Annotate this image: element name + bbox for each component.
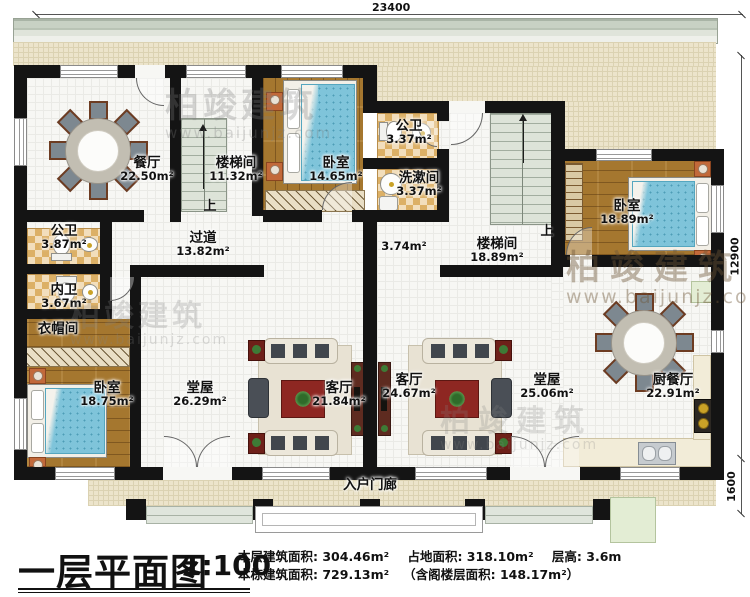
coffee-table bbox=[435, 380, 479, 418]
floor-mid-block bbox=[551, 267, 563, 467]
title-block: 一层平面图 1:100 本层建筑面积: 304.46m² 占地面积: 318.1… bbox=[0, 540, 750, 597]
room-label-bedroom-left: 卧室18.75m² bbox=[80, 381, 133, 407]
room-label-bath-left: 公卫3.87m² bbox=[41, 224, 86, 250]
wall bbox=[263, 210, 322, 222]
wall bbox=[170, 65, 181, 222]
stair-up-label: 上 bbox=[540, 220, 553, 239]
wall bbox=[363, 158, 437, 169]
stair-up-arrow bbox=[523, 121, 524, 163]
room-label-corridor: 过道13.82m² bbox=[176, 231, 229, 257]
window bbox=[14, 118, 27, 166]
nightstand bbox=[266, 162, 283, 181]
stat-land-area: 占地面积: 318.10m² bbox=[407, 549, 533, 564]
stair-up-arrow-head bbox=[519, 114, 527, 121]
stat-total-area: 本栋建筑面积: 729.13m² bbox=[238, 567, 389, 582]
room-label-hall-left: 堂屋26.29m² bbox=[173, 381, 226, 407]
stair-up-arrow-head bbox=[199, 124, 207, 131]
window bbox=[55, 467, 115, 480]
stair-up-arrow bbox=[203, 131, 204, 189]
nightstand bbox=[29, 368, 46, 384]
wall bbox=[14, 210, 144, 222]
wall bbox=[130, 265, 141, 467]
roof-eave bbox=[13, 18, 718, 44]
dining-table-set bbox=[42, 95, 152, 205]
side-table bbox=[495, 340, 512, 361]
dimension-right-height: 12900 bbox=[729, 237, 742, 275]
room-label-living-left: 客厅21.84m² bbox=[312, 381, 365, 407]
room-label-bedroom-top: 卧室14.65m² bbox=[309, 156, 362, 182]
window bbox=[711, 185, 724, 233]
side-table bbox=[495, 433, 512, 454]
side-table bbox=[248, 340, 265, 361]
armchair bbox=[491, 378, 512, 418]
wall bbox=[130, 265, 264, 277]
toilet-tank bbox=[51, 253, 72, 261]
room-label-stair-left: 楼梯间11.32m² bbox=[209, 156, 262, 182]
wall bbox=[363, 210, 377, 467]
dimension-top-width: 23400 bbox=[372, 1, 410, 14]
door-opening bbox=[163, 467, 232, 480]
room-label-living-right: 客厅24.67m² bbox=[382, 373, 435, 399]
window bbox=[596, 149, 652, 161]
dimension-line-porch bbox=[741, 458, 742, 514]
plan-stats: 本层建筑面积: 304.46m² 占地面积: 318.10m² 层高: 3.6m… bbox=[238, 548, 635, 584]
stat-floor-area: 本层建筑面积: 304.46m² bbox=[238, 549, 389, 564]
window bbox=[281, 65, 343, 78]
window bbox=[60, 65, 118, 78]
porch-column bbox=[126, 499, 146, 520]
outdoor-unit bbox=[610, 497, 656, 543]
room-label-washroom: 洗漱间3.37m² bbox=[396, 171, 441, 197]
porch-steps-left bbox=[146, 506, 253, 524]
room-label-corridor-small: 3.74m² bbox=[381, 240, 426, 252]
fridge bbox=[691, 281, 713, 303]
room-label-kitchen-dining: 厨餐厅22.91m² bbox=[646, 373, 699, 399]
floor-plan: 23400 bbox=[0, 0, 750, 597]
room-label-bath-top: 公卫3.37m² bbox=[386, 119, 431, 145]
sofa bbox=[264, 430, 338, 456]
staircase-right bbox=[490, 113, 553, 225]
nightstand bbox=[694, 161, 711, 177]
window bbox=[262, 467, 330, 480]
side-table bbox=[248, 433, 265, 454]
window bbox=[14, 398, 27, 450]
armchair bbox=[248, 378, 269, 418]
rear-terrace bbox=[563, 101, 716, 150]
wall bbox=[551, 101, 565, 267]
window bbox=[620, 467, 680, 480]
door-opening bbox=[510, 467, 580, 480]
wall bbox=[14, 264, 112, 274]
title-underline bbox=[18, 588, 250, 593]
room-label-hall-right: 堂屋25.06m² bbox=[520, 373, 573, 399]
room-label-dining: 餐厅22.50m² bbox=[120, 156, 173, 182]
sofa bbox=[264, 338, 338, 364]
window bbox=[186, 65, 246, 78]
stat-storey-height: 层高: 3.6m bbox=[552, 549, 622, 564]
room-label-cloakroom: 衣帽间 bbox=[38, 322, 79, 336]
kitchen-sink bbox=[638, 442, 676, 465]
dimension-line-top bbox=[35, 14, 743, 15]
room-label-bedroom-right: 卧室18.89m² bbox=[600, 199, 653, 225]
nightstand bbox=[266, 92, 283, 111]
stove bbox=[694, 399, 712, 433]
room-label-stair-right: 楼梯间18.89m² bbox=[470, 237, 523, 263]
door-opening bbox=[449, 101, 485, 113]
kitchen-counter bbox=[563, 438, 711, 467]
wall bbox=[592, 255, 724, 267]
wall bbox=[14, 309, 112, 319]
porch-steps-right bbox=[485, 506, 593, 524]
door-opening bbox=[135, 65, 165, 78]
chair-icon bbox=[675, 333, 694, 352]
sofa bbox=[422, 430, 496, 456]
rear-terrace bbox=[377, 66, 716, 102]
round-table bbox=[611, 310, 677, 376]
sofa bbox=[422, 338, 496, 364]
stat-attic-note: （含阁楼层面积: 148.17m²） bbox=[403, 567, 579, 582]
porch-steps-center bbox=[255, 506, 483, 533]
stair-up-label: 上 bbox=[203, 195, 216, 214]
window bbox=[711, 330, 724, 353]
wall bbox=[252, 65, 263, 216]
room-label-entrance-porch: 入户门廊 bbox=[343, 478, 397, 492]
room-label-bath-inner: 内卫3.67m² bbox=[41, 283, 86, 309]
washing-machine bbox=[379, 196, 398, 211]
dimension-porch-depth: 1600 bbox=[725, 471, 738, 502]
wall bbox=[437, 101, 449, 121]
wall bbox=[560, 255, 570, 267]
window bbox=[415, 467, 487, 480]
wall bbox=[440, 265, 563, 277]
wardrobe-cloakroom bbox=[18, 347, 130, 367]
nightstand bbox=[29, 457, 46, 467]
rear-terrace bbox=[13, 42, 716, 66]
